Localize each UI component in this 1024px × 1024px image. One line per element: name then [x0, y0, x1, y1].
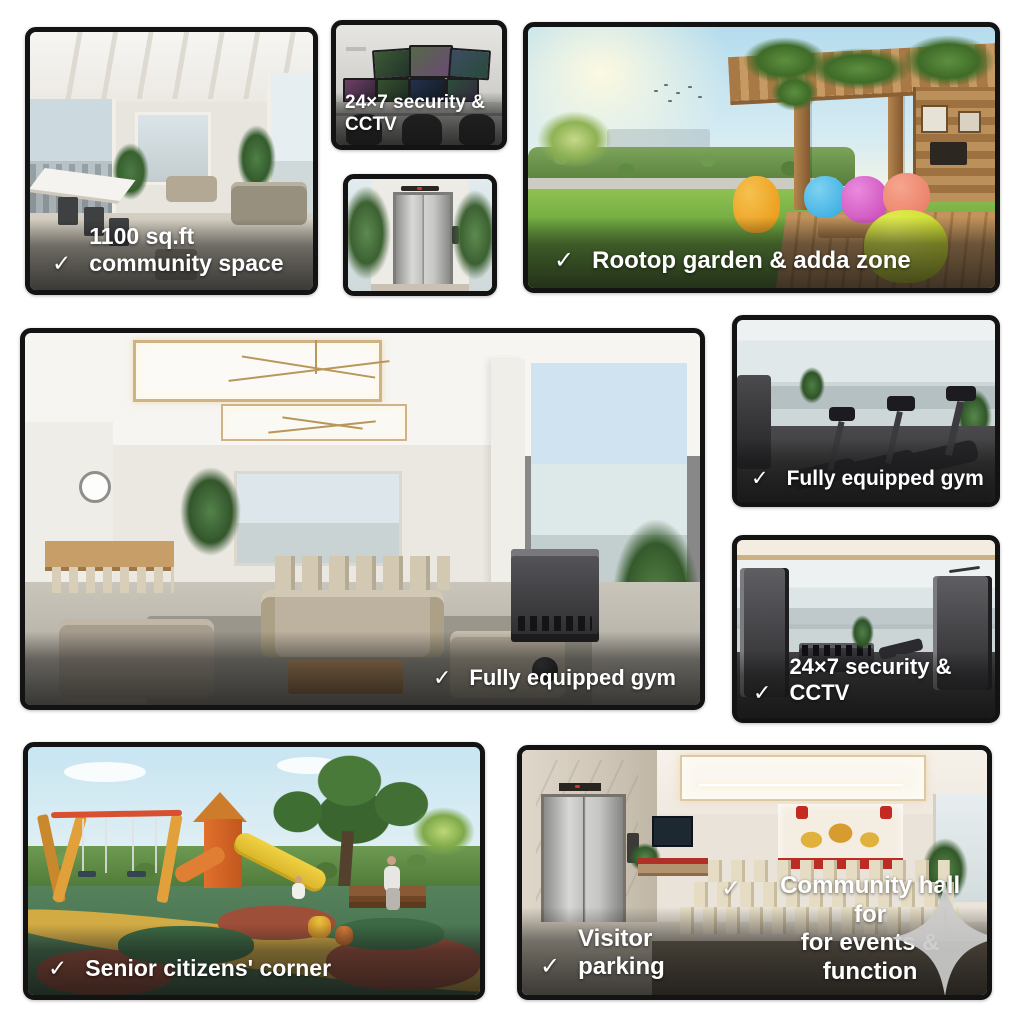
- plant: [799, 367, 825, 403]
- swing-seat: [78, 871, 96, 877]
- tile-strength-gym: ✓ 24×7 security & CCTV: [732, 535, 1000, 723]
- tile-treadmill-gym: ✓ Fully equipped gym: [732, 315, 1000, 507]
- vine: [808, 48, 911, 90]
- cctv-monitor: [448, 48, 491, 81]
- caption-visitor-parking: ✓ Visitor parking: [540, 925, 721, 995]
- amenities-collage-canvas: ✓ 1100 sq.ft community space 24×7 securi…: [0, 0, 1024, 1024]
- elevator-photo: [348, 179, 492, 291]
- birds: [654, 90, 658, 92]
- wall-tv: [652, 816, 693, 847]
- caption-treadmill-gym: ✓ Fully equipped gym: [737, 439, 995, 502]
- ceiling: [737, 540, 995, 560]
- coffee-machine: [930, 142, 967, 165]
- child-body: [292, 883, 305, 899]
- caption-cctv: 24×7 security & CCTV: [336, 92, 502, 145]
- swing-chain: [155, 819, 157, 874]
- tile-playground: ✓ Senior citizens' corner: [23, 742, 485, 1000]
- caption-text: 24×7 security & CCTV: [789, 654, 995, 706]
- floor: [371, 284, 469, 291]
- elevator-doors: [393, 192, 454, 285]
- caption-lounge-gym: ✓ Fully equipped gym: [25, 631, 700, 705]
- checkmark-icon: ✓: [48, 955, 67, 982]
- sofa: [166, 176, 217, 202]
- swing-chain: [82, 819, 84, 874]
- chandelier-stem: [315, 340, 317, 373]
- caption-text: 1100 sq.ft community space: [89, 223, 313, 277]
- floor-indicator: [559, 783, 601, 791]
- tower-roof: [193, 792, 247, 822]
- red-table-runner: [638, 858, 708, 864]
- wall-clock: [79, 471, 111, 503]
- plant: [452, 190, 492, 280]
- palm-plant: [412, 807, 475, 857]
- wall-frame: [921, 105, 948, 132]
- checkmark-icon: ✓: [52, 250, 71, 277]
- tile-cctv-room: 24×7 security & CCTV: [331, 20, 507, 150]
- cctv-monitor: [372, 48, 415, 81]
- ceiling-tray: [680, 755, 926, 801]
- plant: [851, 615, 874, 651]
- cctv-monitor: [409, 45, 453, 78]
- tile-community-space: ✓ 1100 sq.ft community space: [25, 27, 318, 295]
- child-head: [295, 876, 302, 883]
- tile-lounge-gym: ✓ Fully equipped gym: [20, 328, 705, 710]
- checkmark-icon: ✓: [721, 872, 741, 903]
- tile-rooftop-garden: ✓ Rootop garden & adda zone: [523, 22, 1000, 293]
- caption-text: Fully equipped gym: [787, 467, 984, 491]
- caption-text: Fully equipped gym: [469, 665, 676, 691]
- checkmark-icon: ✓: [753, 680, 771, 706]
- swing-chain: [105, 819, 107, 874]
- palm-plant: [537, 111, 612, 168]
- caption-text: Senior citizens' corner: [85, 955, 331, 982]
- indicator-light: [417, 187, 422, 190]
- ceiling-beams: [47, 32, 296, 99]
- dumbbells: [518, 616, 592, 631]
- person-legs: [386, 888, 400, 910]
- back-window: [234, 471, 402, 566]
- wall-frame: [958, 111, 981, 133]
- cove-light: [699, 784, 904, 786]
- tile-elevator: [343, 174, 497, 296]
- vine: [902, 35, 995, 87]
- vine: [771, 74, 818, 111]
- caption-strength-gym: ✓ 24×7 security & CCTV: [737, 651, 995, 718]
- tile-community-hall: ✓ Visitor parking ✓ Community hall for f…: [517, 745, 992, 1000]
- swing-seat: [127, 871, 145, 877]
- checkmark-icon: ✓: [540, 952, 560, 981]
- bean-bag-blue: [804, 176, 846, 218]
- checkmark-icon: ✓: [554, 246, 574, 275]
- sparkle-icon: [889, 877, 992, 999]
- caption-text: Rootop garden & adda zone: [592, 247, 911, 275]
- shelf: [346, 47, 366, 52]
- red-lantern: [796, 806, 808, 818]
- checkmark-icon: ✓: [433, 665, 451, 691]
- caption-playground: ✓ Senior citizens' corner: [28, 924, 480, 995]
- swing-chain: [132, 819, 134, 874]
- cloud: [64, 762, 145, 782]
- dining-chairs: [52, 567, 174, 593]
- dining-table: [45, 541, 173, 567]
- armchairs: [275, 556, 451, 589]
- checkmark-icon: ✓: [751, 466, 769, 491]
- person-head: [387, 856, 396, 865]
- plant: [180, 467, 241, 556]
- caption-rooftop: ✓ Rootop garden & adda zone: [528, 217, 995, 288]
- caption-text: 24×7 security & CCTV: [345, 92, 502, 136]
- treadmill-console: [946, 386, 976, 401]
- red-lantern: [880, 806, 892, 818]
- caption-text: Visitor parking: [578, 925, 721, 981]
- caption-community-space: ✓ 1100 sq.ft community space: [30, 219, 313, 290]
